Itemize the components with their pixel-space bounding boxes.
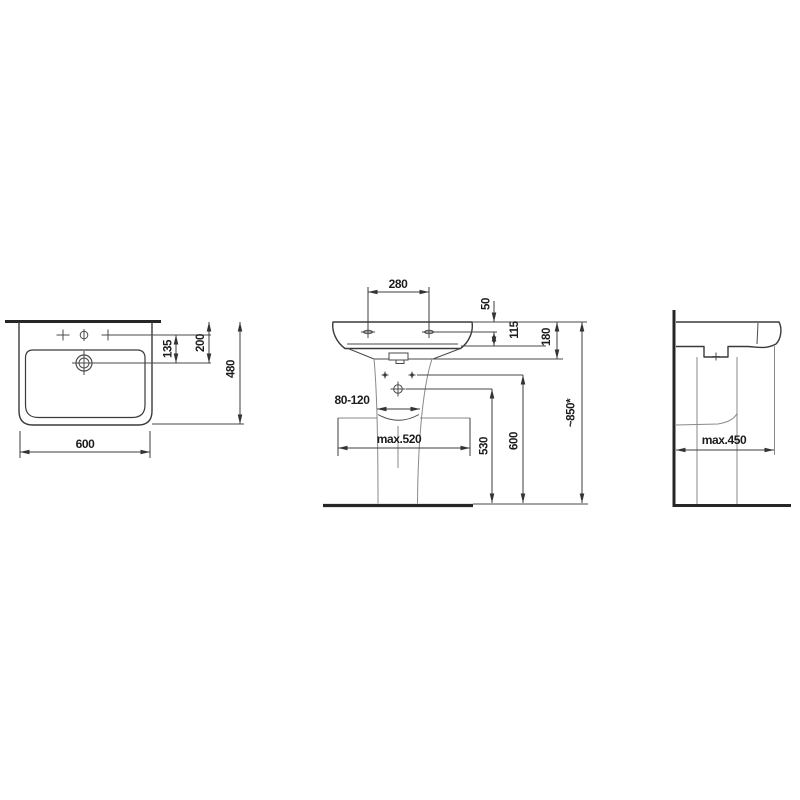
fixing-hole-left-icon: [382, 372, 389, 379]
dim-label-max450: max.450: [702, 433, 747, 447]
dim-label-180: 180: [541, 328, 553, 346]
basin-inner-outline: [26, 350, 146, 418]
dim-label-530: 530: [479, 437, 491, 455]
dim-label-max520: max.520: [377, 432, 422, 446]
dim-label-850: ~850*: [566, 398, 578, 427]
fixing-hole-right-icon: [409, 372, 416, 379]
side-view: max.450: [673, 310, 792, 506]
dim-label-50: 50: [481, 298, 493, 310]
front-view: 280 max.520: [323, 277, 588, 506]
washbasin-dimension-drawing: 135 200 480 600 280: [0, 0, 800, 800]
tap-hole-right-icon: [102, 330, 115, 341]
tap-hole-left-icon: [57, 330, 70, 341]
basin-outer-outline: [19, 322, 152, 425]
tap-hole-center-icon: [80, 329, 88, 341]
drain-outlet-icon: [391, 382, 406, 397]
basin-front-outline: [333, 322, 473, 349]
technical-drawing-page: 135 200 480 600 280: [0, 0, 800, 800]
drain-symbol-icon: [72, 351, 96, 375]
top-view: 135 200 480 600: [5, 322, 244, 459]
rim-inner-line: [757, 323, 758, 344]
trap-bump-tick-icon: [712, 353, 720, 361]
basin-side-outline: [676, 322, 781, 357]
dim-label-480: 480: [226, 360, 238, 378]
dim-label-80-120: 80-120: [335, 393, 371, 407]
dim-label-600-height: 600: [509, 432, 521, 450]
dim-label-280: 280: [389, 277, 409, 291]
dim-label-200: 200: [195, 334, 207, 352]
clearance-curve: [676, 414, 737, 426]
waste-fitting-outline: [389, 353, 408, 360]
dim-label-135: 135: [163, 339, 175, 358]
waste-fitting-tab: [396, 360, 404, 364]
dim-label-600: 600: [76, 437, 96, 451]
tap-hole-front-left-icon: [361, 326, 375, 338]
trap-cover-arc: [378, 415, 419, 421]
tap-hole-front-right-icon: [422, 326, 436, 338]
skirt-right-line: [433, 349, 461, 360]
skirt-left-line: [348, 349, 374, 360]
dim-label-115: 115: [509, 320, 521, 338]
